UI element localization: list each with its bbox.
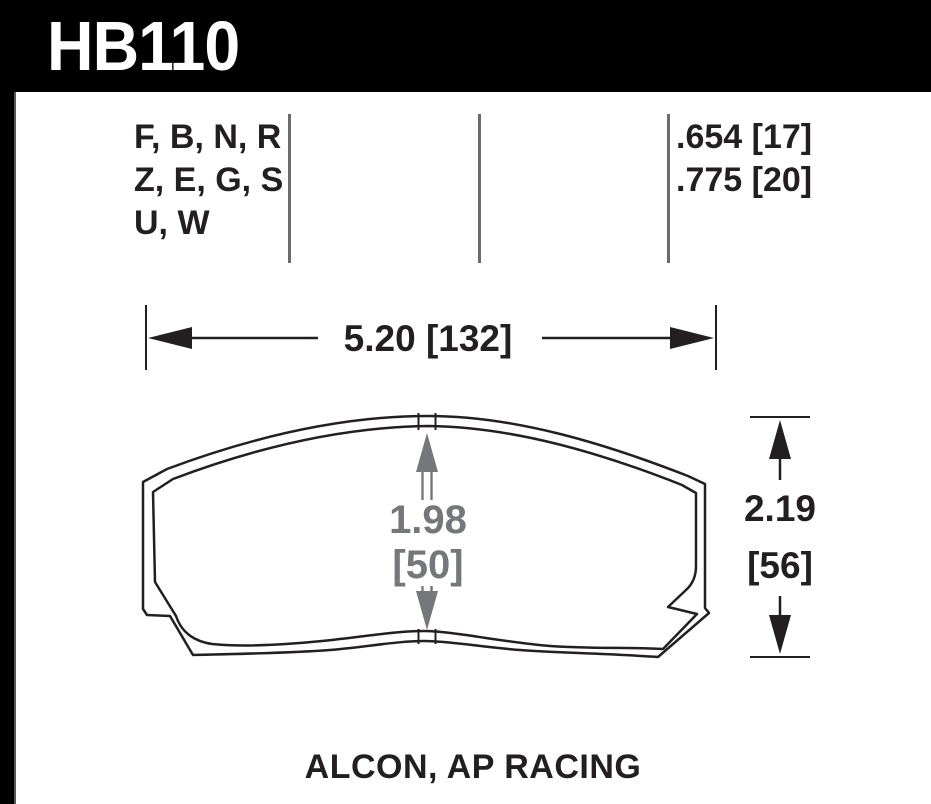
width-dimension: 5.20 [132] <box>146 305 716 370</box>
height-dim-value: 2.19 <box>744 488 816 529</box>
width-dim-label: 5.20 [132] <box>344 318 513 359</box>
width-dim-left-arrow-icon <box>148 327 192 349</box>
height-dimension: 2.19 [56] <box>744 417 816 657</box>
height-dim-mm: [56] <box>747 545 813 586</box>
center-dim-down-arrow-icon <box>416 591 438 630</box>
center-height-dimension: 1.98 [50] <box>389 433 467 630</box>
brake-pad-drawing: 5.20 [132] 1.98 [50] <box>0 0 931 804</box>
applications-label: ALCON, AP RACING <box>15 748 931 787</box>
center-dim-value: 1.98 <box>389 498 467 542</box>
center-dim-up-arrow-icon <box>416 433 438 472</box>
width-dim-right-arrow-icon <box>670 327 714 349</box>
center-dim-mm: [50] <box>392 543 463 587</box>
brake-pad-spec-sheet: HB110 F, B, N, R Z, E, G, S U, W .654 [1… <box>0 0 931 804</box>
height-dim-down-arrow-icon <box>769 615 791 654</box>
